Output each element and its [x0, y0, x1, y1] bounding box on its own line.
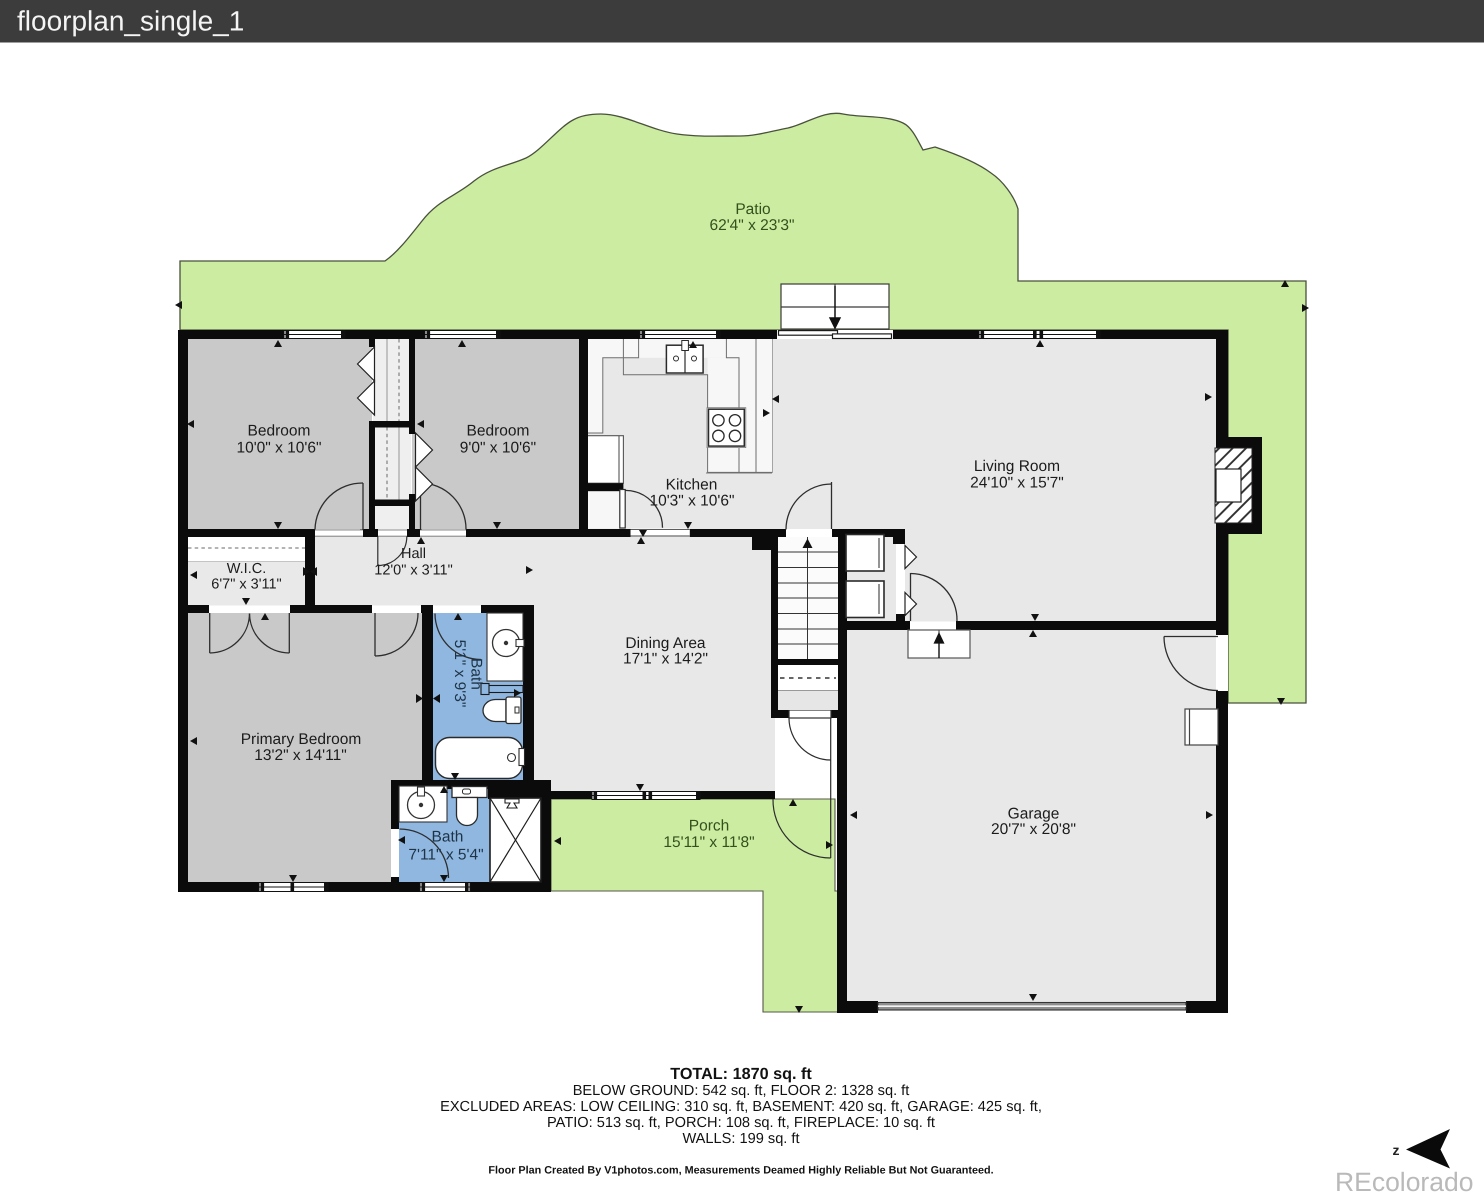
svg-text:Living Room: Living Room [974, 458, 1060, 475]
svg-text:floorplan_single_1: floorplan_single_1 [17, 6, 244, 37]
svg-text:10'0" x 10'6": 10'0" x 10'6" [236, 440, 321, 457]
svg-text:24'10" x 15'7": 24'10" x 15'7" [970, 475, 1064, 492]
svg-text:Bath: Bath [468, 658, 485, 690]
svg-text:15'11" x 11'8": 15'11" x 11'8" [663, 834, 754, 851]
svg-text:Dining Area: Dining Area [625, 635, 706, 652]
svg-text:Patio: Patio [735, 201, 770, 218]
svg-text:9'0" x 10'6": 9'0" x 10'6" [460, 440, 536, 457]
svg-text:TOTAL: 1870 sq. ft: TOTAL: 1870 sq. ft [670, 1065, 812, 1083]
svg-text:BELOW GROUND: 542 sq. ft, FLOO: BELOW GROUND: 542 sq. ft, FLOOR 2: 1328 … [573, 1083, 910, 1099]
svg-text:EXCLUDED AREAS: LOW CEILING: 3: EXCLUDED AREAS: LOW CEILING: 310 sq. ft,… [440, 1099, 1042, 1115]
svg-text:W.I.C.: W.I.C. [227, 561, 266, 577]
svg-text:z: z [1393, 1142, 1400, 1158]
svg-text:17'1" x 14'2": 17'1" x 14'2" [623, 651, 708, 668]
svg-text:5'1" x 9'3": 5'1" x 9'3" [451, 640, 468, 708]
svg-text:REcolorado: REcolorado [1335, 1167, 1473, 1197]
svg-text:13'2" x 14'11": 13'2" x 14'11" [254, 747, 346, 764]
svg-text:Hall: Hall [401, 546, 426, 562]
svg-text:Garage: Garage [1008, 806, 1060, 823]
svg-text:Primary Bedroom: Primary Bedroom [241, 731, 362, 748]
svg-text:7'11" x 5'4": 7'11" x 5'4" [408, 847, 483, 864]
svg-text:6'7" x 3'11": 6'7" x 3'11" [211, 577, 281, 593]
svg-text:Bedroom: Bedroom [248, 423, 311, 440]
svg-text:12'0" x 3'11": 12'0" x 3'11" [374, 562, 452, 578]
svg-text:Bath: Bath [432, 829, 464, 846]
svg-text:PATIO: 513 sq. ft, PORCH: 108: PATIO: 513 sq. ft, PORCH: 108 sq. ft, FI… [547, 1115, 935, 1131]
svg-text:10'3" x 10'6": 10'3" x 10'6" [649, 493, 734, 510]
svg-text:Floor Plan Created By V1photos: Floor Plan Created By V1photos.com, Meas… [488, 1165, 993, 1177]
svg-text:Kitchen: Kitchen [666, 476, 718, 493]
svg-text:62'4" x 23'3": 62'4" x 23'3" [709, 217, 794, 234]
svg-text:Bedroom: Bedroom [467, 423, 530, 440]
svg-text:Porch: Porch [689, 818, 730, 835]
svg-text:WALLS: 199 sq. ft: WALLS: 199 sq. ft [682, 1131, 799, 1147]
svg-text:20'7" x 20'8": 20'7" x 20'8" [991, 821, 1076, 838]
